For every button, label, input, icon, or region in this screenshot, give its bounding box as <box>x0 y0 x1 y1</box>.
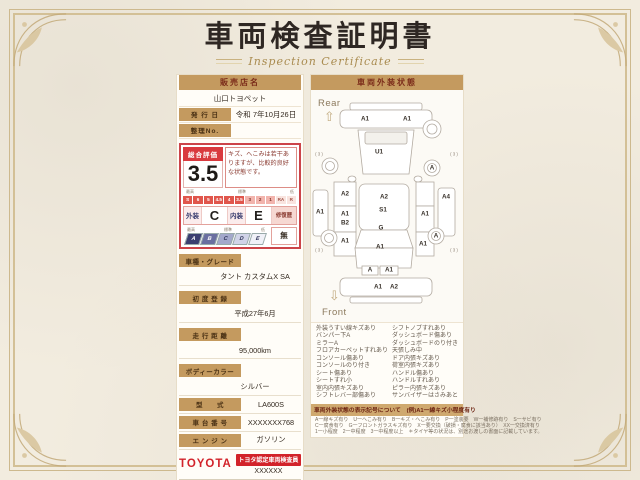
repair-history-label: 修復歴 <box>272 207 296 224</box>
damage-label: A1 <box>385 266 393 273</box>
detail-label: 初 度 登 録 <box>179 291 241 304</box>
detail-label: 走 行 距 離 <box>179 328 241 341</box>
rating-scale: S 6 5 4.5 4 3.5 3 2 1 RA R <box>183 196 297 204</box>
legend-item: ハンドル傷あり <box>392 371 458 377</box>
damage-legend: 外装うすい線キズあり バンパー下A ミラーA フロアカーペットすれあり コンソー… <box>311 322 463 404</box>
issue-date-row: 発 行 日 令和 7年10月26日 <box>179 107 301 123</box>
legend-item: シート傷あり <box>316 371 388 377</box>
corner-flourish <box>10 10 68 68</box>
damage-label: A1 <box>376 243 384 250</box>
dealer-name: 山口トヨペット <box>179 90 301 107</box>
detail-value: タント カスタムX SA <box>209 272 301 282</box>
scale-low-label: 低 <box>261 227 265 233</box>
exterior-grade: C <box>201 207 228 224</box>
damage-label: A2 <box>341 190 349 197</box>
scale-cell: 3.5 <box>235 196 245 204</box>
grade-cell: E <box>248 233 267 245</box>
legend-item: 荷室内張キズあり <box>392 363 458 369</box>
damage-label: G <box>379 224 384 231</box>
scale-high-label: 最高 <box>186 189 194 195</box>
grade-scale: A B C D E <box>183 233 269 245</box>
ref-no-label: 整理No. <box>179 124 231 137</box>
legend-item: 室内内張キズあり <box>316 386 388 392</box>
damage-label: A <box>368 266 373 273</box>
legend-item: ダッシュボードのり付き <box>392 341 458 347</box>
vehicle-info-panel: 販売店名 山口トヨペット 発 行 日 令和 7年10月26日 整理No. 総合評… <box>176 74 304 480</box>
exterior-condition-panel: 車両外装状態 Rear ⇧ ⇩ Front <box>310 74 464 438</box>
symbol-legend-header: 車両外装状態の表示記号について (例)A1一線キズ小程度有り <box>311 404 463 416</box>
corner-flourish <box>10 412 68 470</box>
toyota-logo: TOYOTA <box>179 458 232 470</box>
scale-cell: 6 <box>193 196 203 204</box>
legend-item: 天張しみ中 <box>392 348 458 354</box>
damage-diagram-panel: Rear ⇧ ⇩ Front <box>311 90 463 322</box>
interior-grade: E <box>245 207 272 224</box>
detail-label: エ ン ジ ン <box>179 434 241 447</box>
inspector-badge: トヨタ認定車両検査員 <box>236 454 301 466</box>
subtitle-text: Inspection Certificate <box>248 55 391 68</box>
damage-label: U1 <box>375 148 383 155</box>
damage-label: A2 <box>380 193 388 200</box>
detail-row-model-code: 型 式 LA600S <box>179 396 301 414</box>
repair-history-value: 無 <box>271 227 297 245</box>
damage-label: A1 <box>361 115 369 122</box>
legend-item: 外装うすい線キズあり <box>316 326 388 332</box>
damage-label: A <box>430 164 435 171</box>
rating-scale-labels: 最高 標準 低 <box>183 188 297 195</box>
detail-row-mileage: 走 行 距 離 95,000km <box>179 323 301 359</box>
legend-item: シフトノブすれあり <box>392 326 458 332</box>
down-arrow-icon: ⇩ <box>322 290 347 302</box>
detail-value: ガソリン <box>241 435 301 445</box>
detail-value: XXXXXXX768 <box>241 418 301 427</box>
scale-cell: S <box>183 196 193 204</box>
scale-cell: RA <box>276 196 286 204</box>
damage-label: S1 <box>379 206 387 213</box>
detail-row-model: 車種・グレード タント カスタムX SA <box>179 249 301 286</box>
issue-date-label: 発 行 日 <box>179 108 231 121</box>
tire-mark-label: ( 3 ) <box>315 151 323 156</box>
page-title: 車両検査証明書 <box>176 22 464 54</box>
damage-label: A1 <box>421 210 429 217</box>
detail-row-first-registration: 初 度 登 録 平成27年6月 <box>179 286 301 323</box>
legend-item: シートすれ小 <box>316 378 388 384</box>
legend-right-column: シフトノブすれあり ダッシュボード傷あり ダッシュボードのり付き 天張しみ中 ド… <box>392 326 458 401</box>
legend-item: ミラーA <box>316 341 388 347</box>
scale-cell: R <box>287 196 297 204</box>
certificate-page: 車両検査証明書 Inspection Certificate 販売店名 山口トヨ… <box>0 0 640 480</box>
legend-item: ハンドルすれあり <box>392 378 458 384</box>
legend-item: バンパー下A <box>316 333 388 339</box>
scale-low-label: 低 <box>290 189 294 195</box>
legend-item: シフトレバー部傷あり <box>316 393 388 399</box>
detail-row-body-color: ボディーカラー シルバー <box>179 359 301 396</box>
detail-value: シルバー <box>209 382 301 392</box>
scale-cell: 4 <box>224 196 234 204</box>
scale-cell: 2 <box>256 196 266 204</box>
detail-label: 型 式 <box>179 398 241 411</box>
legend-item: フロアカーペットすれあり <box>316 348 388 354</box>
damage-label: B2 <box>341 219 349 226</box>
grade-scale-row: 最高 標準 低 A B C D E <box>183 227 297 245</box>
legend-item: ピラー内張キズあり <box>392 386 458 392</box>
detail-label: 車種・グレード <box>179 254 241 267</box>
grade-grid: 外装 C 内装 E 修復歴 <box>183 206 297 225</box>
tire-mark-label: ( 3 ) <box>450 247 458 252</box>
inspector-section: TOYOTA トヨタ認定車両検査員 XXXXXX <box>179 450 301 478</box>
page-subtitle: Inspection Certificate <box>176 55 464 68</box>
detail-value: 95,000km <box>209 346 301 355</box>
scale-cell: 1 <box>266 196 276 204</box>
rating-score: 3.5 <box>183 161 223 188</box>
symbol-line: 1一小程度 2一中程度 3一中程度以上 ＊タイヤ等の状況は、別途お渡しの書面に記… <box>315 429 459 435</box>
damage-label: A2 <box>390 283 398 290</box>
scale-high-label: 最高 <box>187 227 195 233</box>
dealer-header: 販売店名 <box>179 75 301 90</box>
flourish-line <box>398 59 424 64</box>
overall-rating-box: 総合評価 3.5 キズ、へこみは若干ありますが、比較的良好な状態です。 最高 標… <box>179 143 301 249</box>
rear-label: Rear <box>318 98 341 109</box>
legend-left-column: 外装うすい線キズあり バンパー下A ミラーA フロアカーペットすれあり コンソー… <box>316 326 388 401</box>
scale-cell: 3 <box>245 196 255 204</box>
inspector-id: XXXXXX <box>236 468 301 475</box>
front-direction: ⇩ Front <box>322 290 347 320</box>
symbol-legend-lines: A一線キズ有り U一へこみ有り B一キズ・へこみ有り P一塗装要 W一補修跡有り… <box>311 416 463 438</box>
rating-comment: キズ、へこみは若干ありますが、比較的良好な状態です。 <box>225 147 297 188</box>
legend-item: ダッシュボード傷あり <box>392 333 458 339</box>
car-damage-diagram: A1A1U1AA2A2S1A4A1A1B2A1GA1A1A1AAA1A1A2( … <box>312 102 462 317</box>
interior-label: 内装 <box>228 207 245 224</box>
detail-row-chassis-no: 車 台 番 号 XXXXXXX768 <box>179 414 301 432</box>
rating-header: 総合評価 <box>183 147 223 161</box>
legend-item: コンソール傷あり <box>316 356 388 362</box>
damage-label: A1 <box>374 283 382 290</box>
damage-label: A1 <box>341 210 349 217</box>
detail-value: LA600S <box>241 400 301 409</box>
issue-date-value: 令和 7年10月26日 <box>231 109 301 120</box>
legend-item: ドア内張キズあり <box>392 356 458 362</box>
detail-value: 平成27年6月 <box>209 309 301 319</box>
certificate-content: 車両検査証明書 Inspection Certificate 販売店名 山口トヨ… <box>176 22 464 480</box>
scale-cell: 4.5 <box>214 196 224 204</box>
front-label: Front <box>322 307 347 318</box>
corner-flourish <box>572 412 630 470</box>
scale-mid-label: 標準 <box>238 189 246 195</box>
legend-item: コンソールのり付き <box>316 363 388 369</box>
exterior-label: 外装 <box>184 207 201 224</box>
damage-label: A4 <box>442 193 450 200</box>
scale-cell: 5 <box>204 196 214 204</box>
exterior-header: 車両外装状態 <box>311 75 463 90</box>
legend-item: サンバイザーはさみあと <box>392 393 458 399</box>
detail-row-engine: エ ン ジ ン ガソリン <box>179 432 301 450</box>
rear-direction: Rear ⇧ <box>318 93 341 123</box>
up-arrow-icon: ⇧ <box>318 111 341 123</box>
damage-label: A1 <box>419 240 427 247</box>
detail-label: 車 台 番 号 <box>179 416 241 429</box>
corner-flourish <box>572 10 630 68</box>
ref-no-row: 整理No. <box>179 123 301 139</box>
flourish-line <box>216 59 242 64</box>
symbol-line: A一線キズ有り U一へこみ有り B一キズ・へこみ有り P一塗装要 W一補修跡有り… <box>315 417 459 423</box>
scale-mid-label: 標準 <box>224 227 232 233</box>
detail-label: ボディーカラー <box>179 364 241 377</box>
damage-label: A1 <box>341 237 349 244</box>
damage-label: A1 <box>403 115 411 122</box>
damage-label: A <box>434 232 439 239</box>
tire-mark-label: ( 3 ) <box>450 151 458 156</box>
damage-label: A1 <box>316 208 324 215</box>
tire-mark-label: ( 3 ) <box>315 247 323 252</box>
